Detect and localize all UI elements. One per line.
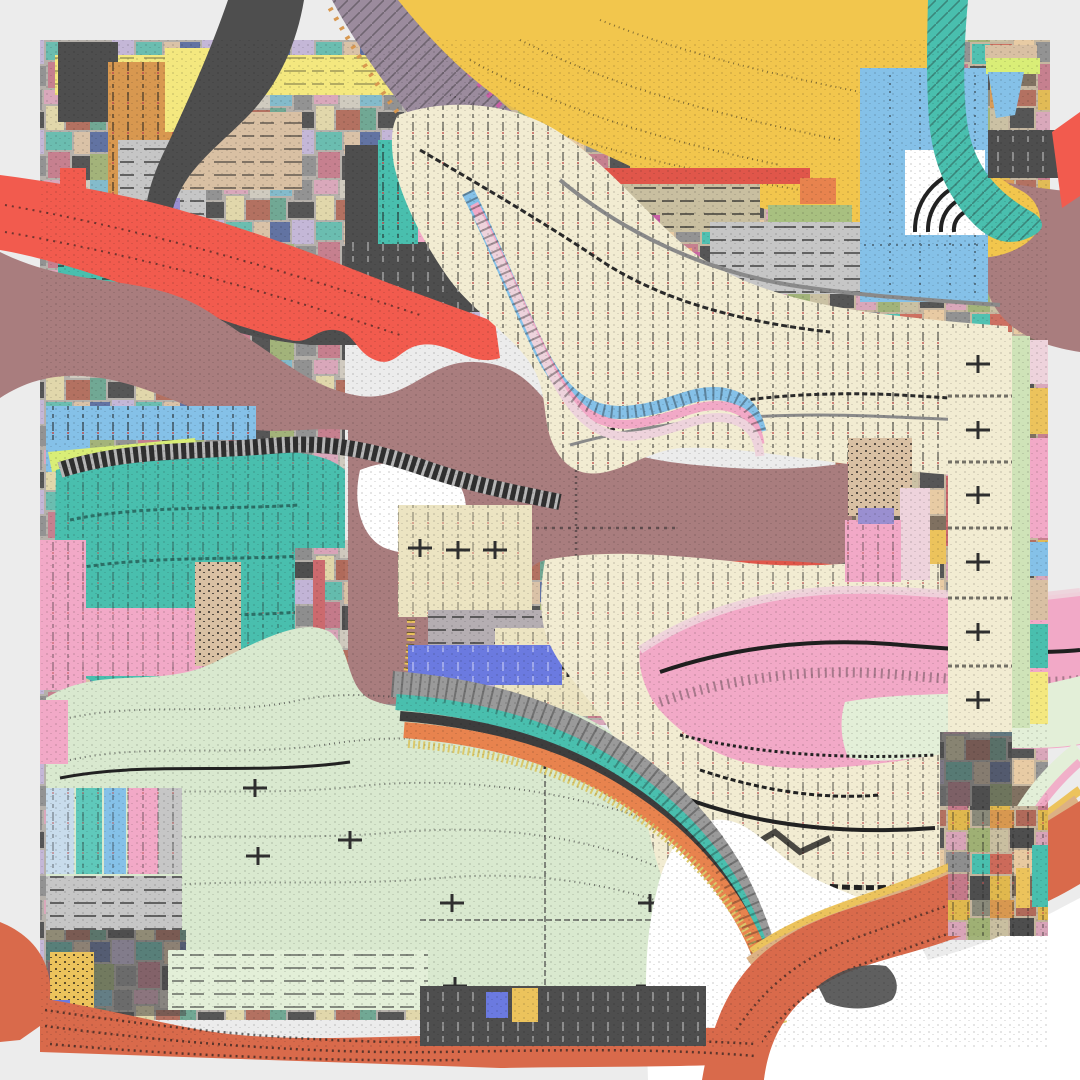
- global-grain-overlay: [40, 40, 1048, 1048]
- glitch-canvas: [0, 0, 1080, 1080]
- glitch-art-svg: [0, 0, 1080, 1080]
